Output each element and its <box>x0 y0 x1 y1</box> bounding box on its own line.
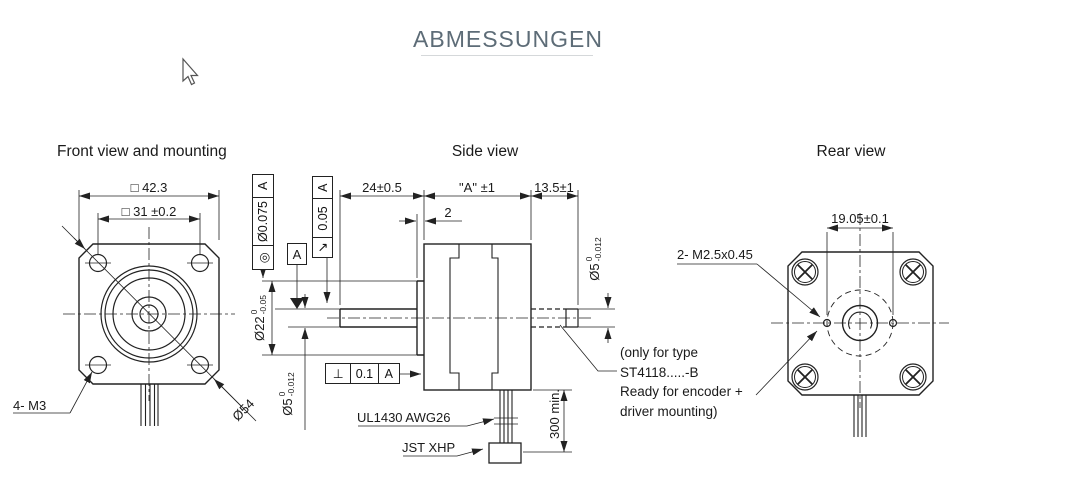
encoder-note: (only for type ST4118.....-B Ready for e… <box>620 346 743 424</box>
rear-wires <box>854 395 866 437</box>
side-body-length-dim: "A" ±1 <box>459 181 495 194</box>
front-shaft-diameter-dim: Ø50-0.012 <box>278 352 296 436</box>
side-pilot-depth-dimension <box>399 214 462 278</box>
dimension-drawing-page: ABMESSUNGEN Front view and mounting Side… <box>0 0 1089 489</box>
rear-shaft-diameter-dim: Ø50-0.012 <box>585 227 603 291</box>
concentricity-icon: ◎ <box>256 252 271 263</box>
perpendicularity-icon: ⊥ <box>333 366 344 381</box>
rear-shaft-note-leader <box>560 325 617 371</box>
side-rear-shaft-length-dim: 13.5±1 <box>534 181 574 194</box>
encoder-note-line-1: (only for type <box>620 346 743 360</box>
rear-tapped-holes-label: 2- M2.5x0.45 <box>677 248 753 261</box>
datum-a-box: A <box>287 243 307 265</box>
side-wires <box>494 390 518 443</box>
pilot-diameter-dim: Ø220-0.05 <box>250 284 268 352</box>
front-outer-square-dim: □ 42.3 <box>131 181 168 194</box>
side-view-title: Side view <box>452 144 518 160</box>
connector-label: JST XHP <box>402 441 455 454</box>
front-shaft-tolerance: 0-0.012 <box>278 372 297 396</box>
side-lamination-contour <box>450 244 498 390</box>
connector-outline <box>489 443 521 463</box>
datum-triangle <box>290 298 304 309</box>
rear-hole-spacing-dim: 19.05±0.1 <box>831 212 889 225</box>
runout-frame: ↗ 0.05 A <box>312 176 333 258</box>
front-view-drawing <box>13 190 256 426</box>
front-diagonal-dimension <box>62 226 256 421</box>
front-view-title: Front view and mounting <box>57 144 227 160</box>
runout-icon: ↗ <box>317 240 328 256</box>
pilot-tolerance: 0-0.05 <box>250 295 269 314</box>
perpendicularity-frame: ⊥ 0.1 A <box>325 363 400 384</box>
front-mount-holes-label: 4- M3 <box>13 399 46 412</box>
rear-shaft-tolerance: 0-0.012 <box>585 237 604 261</box>
cable-label: UL1430 AWG26 <box>357 411 450 424</box>
rear-centerlines <box>771 213 949 408</box>
front-wires <box>141 384 158 426</box>
title-underline <box>421 55 593 56</box>
technical-drawing <box>0 0 1089 489</box>
encoder-note-line-2: ST4118.....-B <box>620 366 743 380</box>
mouse-cursor <box>183 59 198 85</box>
page-title: ABMESSUNGEN <box>413 26 603 53</box>
rear-screws <box>792 259 926 390</box>
side-pilot-depth-dim: 2 <box>444 206 451 219</box>
encoder-note-line-4: driver mounting) <box>620 405 743 419</box>
concentricity-frame: ◎ Ø0.075 A <box>252 174 274 270</box>
encoder-note-line-3: Ready for encoder + <box>620 385 743 399</box>
rear-view-title: Rear view <box>817 144 886 160</box>
front-bolt-spacing-dim: □ 31 ±0.2 <box>122 205 177 218</box>
side-shaft-length-dim: 24±0.5 <box>362 181 402 194</box>
cable-length-dim: 300 min. <box>546 386 562 442</box>
